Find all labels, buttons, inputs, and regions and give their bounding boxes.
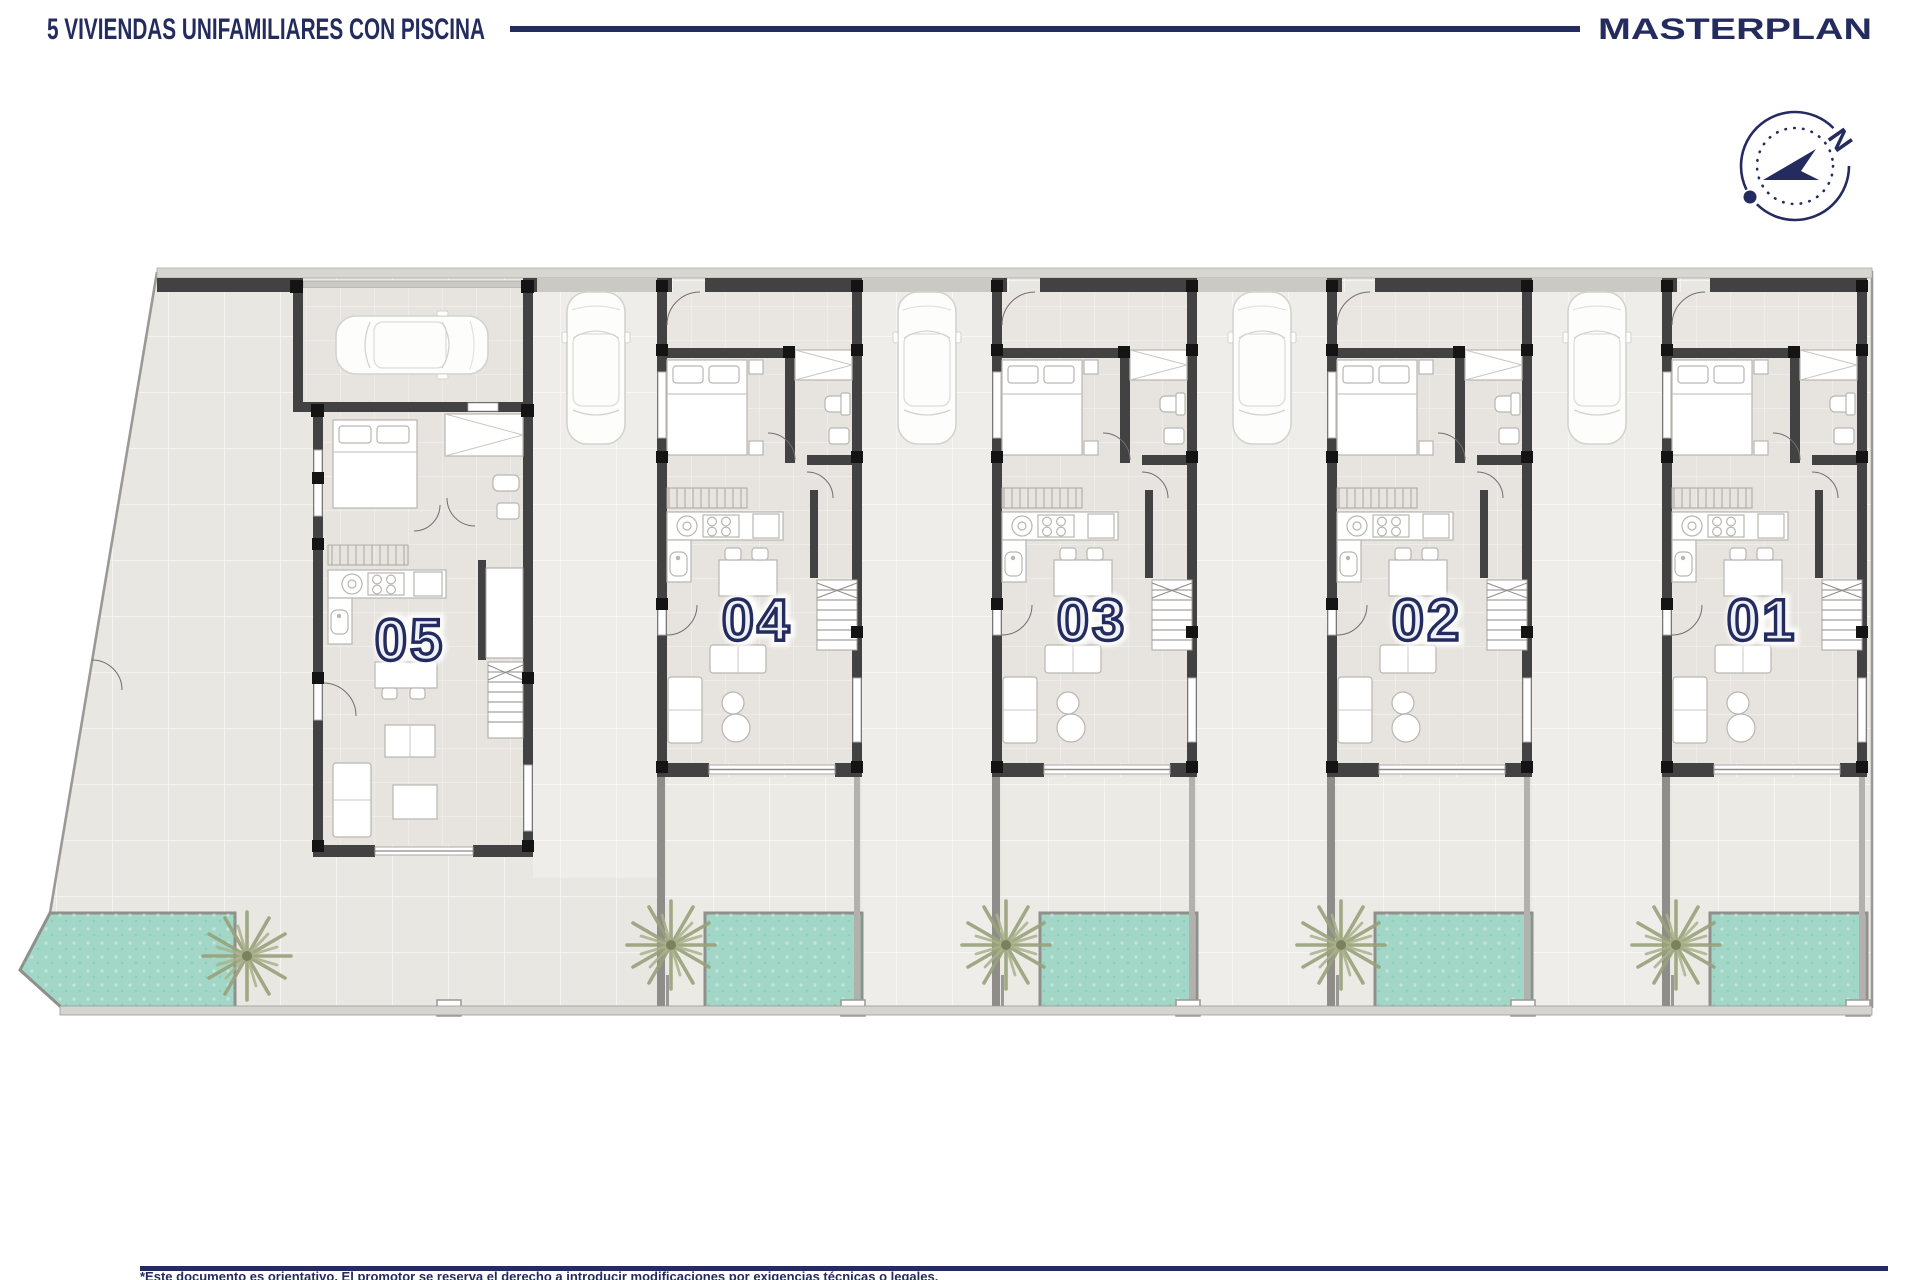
header-divider xyxy=(510,26,1580,32)
site-plan: 05 05 04 04 03 03 02 02 01 01 xyxy=(20,268,1872,1016)
compass-icon: N xyxy=(1741,112,1859,220)
header: 5 VIVIENDAS UNIFAMILIARES CON PISCINA MA… xyxy=(47,13,1872,46)
compass-north-label: N xyxy=(1822,123,1859,157)
bottom-boundary xyxy=(60,1006,1872,1015)
unit-02-label: 02 xyxy=(1392,588,1463,653)
masterplan-canvas: 5 VIVIENDAS UNIFAMILIARES CON PISCINA MA… xyxy=(0,0,1920,1280)
unit-04-label: 04 xyxy=(722,588,793,653)
unit-05-label: 05 xyxy=(375,608,446,673)
plan-type-label: MASTERPLAN xyxy=(1598,13,1872,46)
unit-01-label: 01 xyxy=(1727,588,1798,653)
footer: *Este documento es orientativo. El promo… xyxy=(140,1266,1888,1280)
garage-door xyxy=(303,281,523,288)
footer-disclaimer: *Este documento es orientativo. El promo… xyxy=(140,1269,938,1280)
page-title: 5 VIVIENDAS UNIFAMILIARES CON PISCINA xyxy=(47,13,485,46)
unit-03-label: 03 xyxy=(1057,588,1128,653)
